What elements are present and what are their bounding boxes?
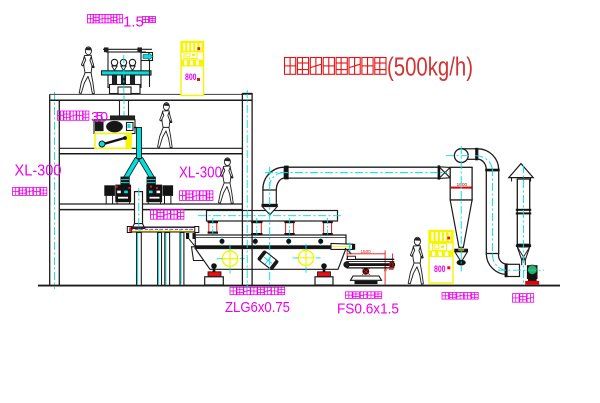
svg-text:XL-300: XL-300: [179, 165, 222, 182]
svg-text:ZLG6x0.75: ZLG6x0.75: [225, 300, 290, 316]
svg-text:FS0.6x1.5: FS0.6x1.5: [337, 301, 399, 318]
svg-text:(500kg/h): (500kg/h): [387, 54, 473, 82]
svg-text:1500: 1500: [361, 249, 372, 254]
svg-text:800: 800: [185, 72, 197, 83]
svg-text:XL-300: XL-300: [15, 163, 62, 180]
svg-text:1600: 1600: [457, 182, 468, 188]
svg-text:350: 350: [91, 109, 108, 125]
svg-text:1.5: 1.5: [123, 14, 144, 31]
svg-text:800: 800: [434, 264, 446, 275]
